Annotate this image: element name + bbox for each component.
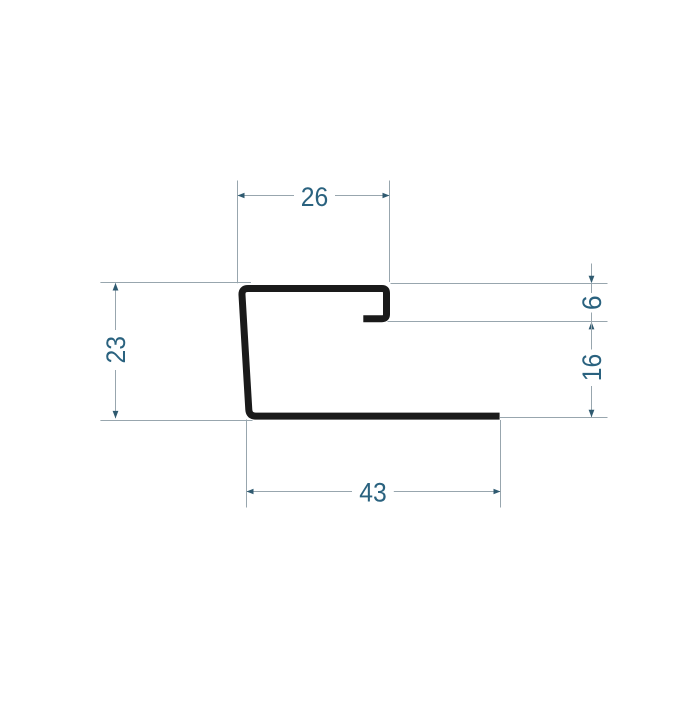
svg-text:26: 26 <box>301 182 329 212</box>
svg-text:43: 43 <box>359 477 387 507</box>
svg-text:16: 16 <box>577 354 607 382</box>
svg-text:23: 23 <box>101 336 131 364</box>
svg-text:6: 6 <box>577 295 607 310</box>
